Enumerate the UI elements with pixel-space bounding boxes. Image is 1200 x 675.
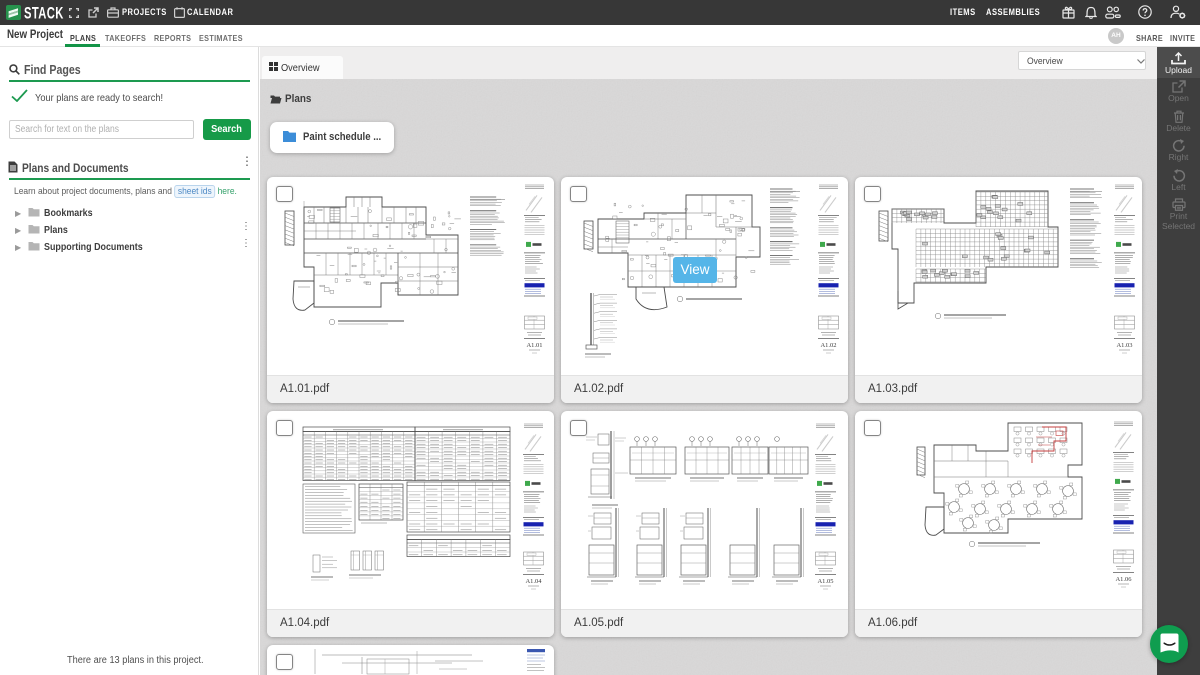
- svg-text:A1.06: A1.06: [1115, 576, 1132, 583]
- svg-text:A1.02: A1.02: [820, 342, 836, 349]
- svg-text:A1.01: A1.01: [526, 342, 542, 349]
- svg-text:A1.04: A1.04: [525, 578, 542, 585]
- svg-text:A1.05: A1.05: [817, 578, 833, 585]
- svg-text:A1.03: A1.03: [1116, 342, 1132, 349]
